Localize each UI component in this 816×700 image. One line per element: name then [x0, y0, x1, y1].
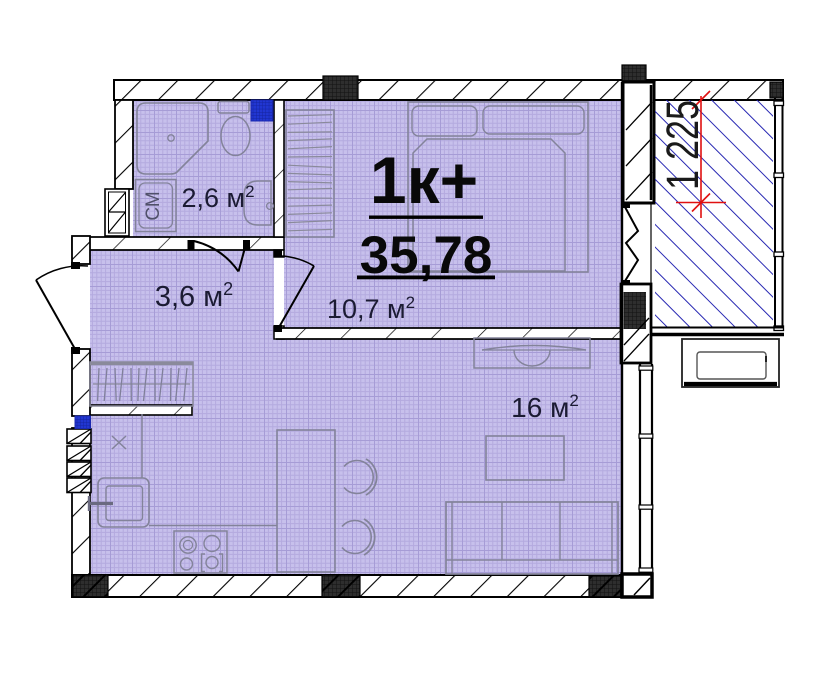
svg-text:16 м2: 16 м2 [511, 391, 579, 423]
svg-text:1 225: 1 225 [657, 100, 708, 190]
svg-text:10,7 м2: 10,7 м2 [327, 293, 415, 324]
svg-text:1к+: 1к+ [370, 143, 478, 217]
svg-text:2,6 м2: 2,6 м2 [181, 182, 254, 213]
svg-text:СМ: СМ [143, 191, 164, 220]
svg-text:3,6 м2: 3,6 м2 [155, 279, 233, 313]
